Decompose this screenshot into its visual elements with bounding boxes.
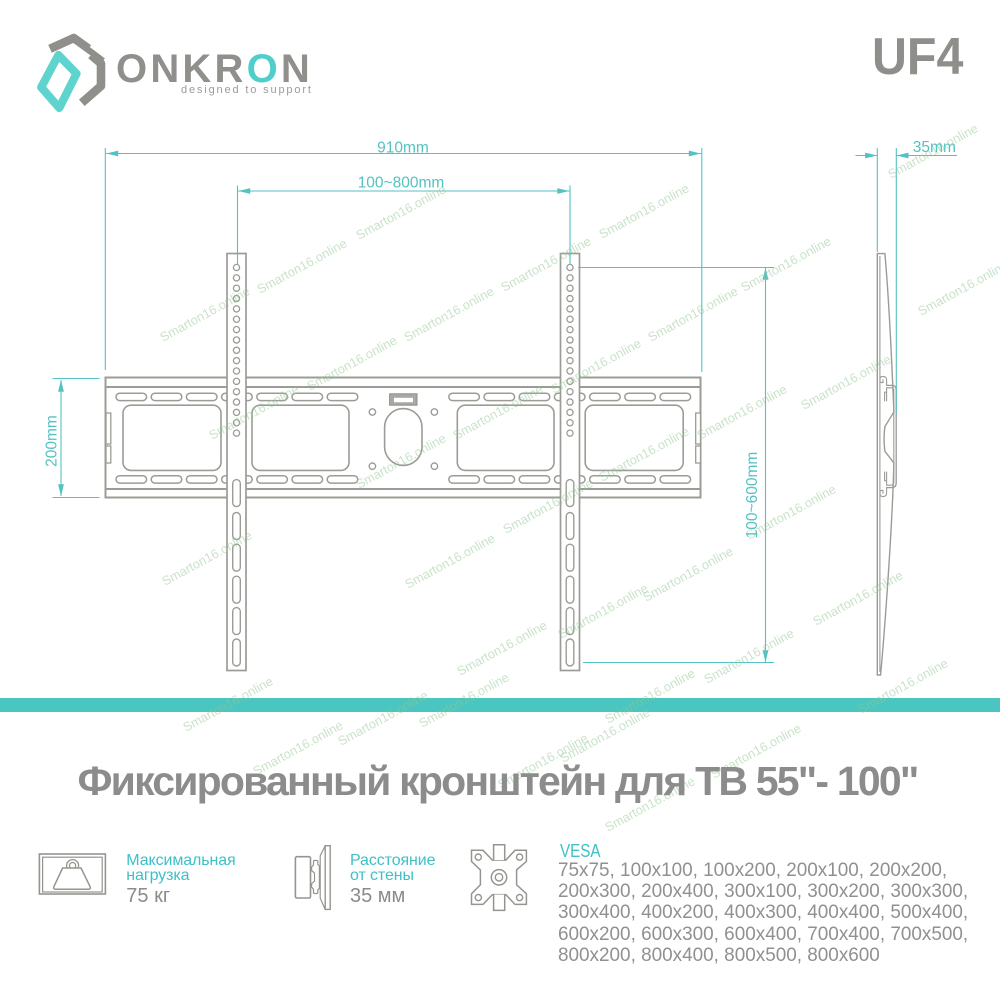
svg-text:Smarton16.online: Smarton16.online: [810, 567, 905, 628]
svg-text:Smarton16.online: Smarton16.online: [640, 543, 735, 604]
svg-text:Smarton16.online: Smarton16.online: [694, 381, 789, 442]
svg-text:910mm: 910mm: [377, 140, 429, 157]
svg-text:Smarton16.online: Smarton16.online: [254, 235, 349, 296]
svg-text:Smarton16.online: Smarton16.online: [402, 530, 497, 591]
svg-text:Smarton16.online: Smarton16.online: [738, 233, 833, 294]
svg-text:Smarton16.online: Smarton16.online: [596, 180, 691, 241]
svg-text:Smarton16.online: Smarton16.online: [645, 283, 740, 344]
svg-text:Smarton16.online: Smarton16.online: [401, 283, 496, 344]
svg-text:200mm: 200mm: [44, 415, 61, 467]
svg-text:Smarton16.online: Smarton16.online: [915, 257, 1000, 318]
svg-text:Smarton16.online: Smarton16.online: [885, 120, 980, 181]
svg-text:Smarton16.online: Smarton16.online: [454, 617, 549, 678]
svg-text:Smarton16.online: Smarton16.online: [701, 625, 796, 686]
